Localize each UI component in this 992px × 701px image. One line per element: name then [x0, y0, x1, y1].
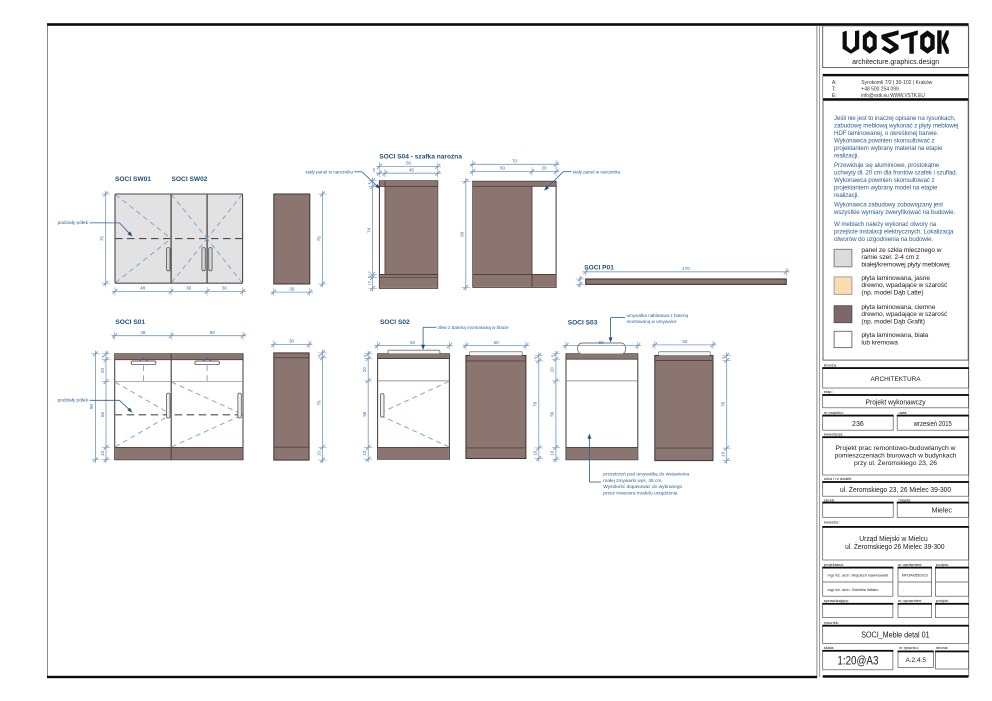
svg-text:2: 2	[367, 271, 371, 273]
svg-text:4: 4	[363, 355, 367, 357]
svg-text:E:: E:	[832, 93, 837, 99]
svg-text:4: 4	[317, 355, 321, 357]
svg-text:płyta laminowana, ciemne: płyta laminowana, ciemne	[861, 304, 935, 311]
svg-text:małej zmywarki wys. 45 cm.: małej zmywarki wys. 45 cm.	[603, 478, 662, 484]
svg-text:4: 4	[367, 183, 371, 185]
svg-text:SOCI S02: SOCI S02	[380, 319, 410, 326]
svg-text:10: 10	[550, 450, 555, 456]
svg-text:ramie szer. 2-4 cm z: ramie szer. 2-4 cm z	[861, 254, 919, 261]
svg-text:Urząd Miejski w Mielcu: Urząd Miejski w Mielcu	[859, 536, 927, 543]
svg-text:56: 56	[362, 411, 367, 417]
svg-text:60: 60	[210, 330, 216, 335]
svg-text:Projekt prac remontowo-budowla: Projekt prac remontowo-budowlanych w	[836, 445, 956, 452]
svg-text:4: 4	[101, 356, 105, 358]
svg-text:drewno, wpadające w szarość: drewno, wpadające w szarość	[861, 282, 948, 289]
svg-text:przestrzeń pod umywalką do wst: przestrzeń pod umywalką do wstawienia	[603, 472, 689, 478]
svg-text:30: 30	[289, 286, 295, 291]
svg-text:ul. Żeromskiego 26 Mielec 39-3: ul. Żeromskiego 26 Mielec 39-300	[845, 542, 944, 551]
svg-text:projektantem wybrany materiał: projektantem wybrany materiał na etapie	[834, 145, 943, 152]
svg-text:białej/kremowej płyty meblowej: białej/kremowej płyty meblowej	[861, 262, 950, 269]
svg-text:90: 90	[460, 231, 465, 237]
svg-text:76: 76	[721, 401, 726, 407]
svg-text:strona:: strona:	[936, 645, 948, 650]
svg-text:48: 48	[140, 330, 146, 335]
svg-text:30: 30	[186, 286, 192, 291]
svg-text:10: 10	[362, 450, 367, 456]
svg-text:20: 20	[541, 166, 547, 171]
svg-text:data:: data:	[899, 410, 908, 415]
svg-text:10: 10	[721, 451, 726, 457]
svg-text:W meblach należy wykonać otwor: W meblach należy wykonać otwory na	[834, 221, 937, 228]
svg-text:wszystkie wymiary zweryfikować: wszystkie wymiary zweryfikować na budowi…	[833, 209, 955, 216]
svg-text:SOCI S03: SOCI S03	[568, 319, 598, 326]
svg-text:nr uprawnień:: nr uprawnień:	[898, 562, 922, 567]
svg-text:(np. model Dąb Latte): (np. model Dąb Latte)	[861, 290, 923, 297]
svg-text:Syrokomli 7/2 | 30-102 | Krak: Syrokomli 7/2 | 30-102 | Kraków	[861, 80, 932, 86]
svg-text:stały panel w narożniku: stały panel w narożniku	[573, 169, 621, 174]
svg-text:Wysokość dopasować do wybraneg: Wysokość dopasować do wybranego	[603, 484, 682, 490]
svg-text:SOCI SW02: SOCI SW02	[172, 176, 208, 183]
svg-text:realizacji.: realizacji.	[834, 192, 859, 199]
svg-text:projektanci:: projektanci:	[824, 562, 844, 567]
svg-text:4: 4	[722, 357, 726, 359]
svg-text:4: 4	[551, 355, 555, 357]
svg-text:umywalka nablatowa z baterią: umywalka nablatowa z baterią	[627, 313, 689, 318]
svg-text:60: 60	[599, 340, 605, 345]
svg-text:56: 56	[550, 411, 555, 417]
svg-text:+48 500 254 099: +48 500 254 099	[861, 87, 899, 93]
svg-text:Wykonawca powinien skonsultowa: Wykonawca powinien skonsultować z	[834, 137, 934, 144]
svg-text:SOCI S04 - szafka narożna: SOCI S04 - szafka narożna	[379, 154, 462, 161]
svg-text:74: 74	[366, 227, 371, 233]
svg-text:ul. Żeromskiego 23, 26 Mielec: ul. Żeromskiego 23, 26 Mielec 39-300	[840, 485, 951, 494]
svg-text:montowaną w umywalce: montowaną w umywalce	[627, 319, 677, 324]
svg-text:lub kremowa: lub kremowa	[861, 340, 898, 347]
svg-text:branża:: branża:	[824, 363, 837, 368]
svg-text:architecture.graphics.design: architecture.graphics.design	[852, 59, 939, 66]
svg-text:1:20@A3: 1:20@A3	[837, 656, 878, 668]
svg-text:nr rysunku:: nr rysunku:	[899, 645, 919, 650]
svg-text:nr projektu:: nr projektu:	[824, 410, 844, 415]
svg-text:45: 45	[409, 167, 415, 172]
svg-text:30: 30	[222, 286, 228, 291]
svg-text:75: 75	[100, 236, 105, 242]
svg-text:T:: T:	[832, 87, 836, 93]
svg-text:10: 10	[100, 451, 105, 457]
svg-text:(np. model Dąb Grafit): (np. model Dąb Grafit)	[861, 319, 924, 326]
svg-text:10: 10	[316, 451, 321, 457]
svg-text:realizacji.: realizacji.	[834, 152, 859, 159]
svg-text:50: 50	[682, 339, 688, 344]
svg-text:10: 10	[533, 450, 538, 456]
svg-text:20: 20	[550, 367, 555, 373]
svg-text:mgr inż. arch. Gabriela Waśko: mgr inż. arch. Gabriela Waśko	[828, 588, 879, 592]
svg-text:60: 60	[410, 340, 416, 345]
svg-text:SOCI_Meble detal 01: SOCI_Meble detal 01	[861, 631, 930, 640]
svg-text:70: 70	[512, 159, 518, 164]
svg-text:236: 236	[852, 421, 864, 428]
svg-text:mgr inż. arch. Wojciech Gawino: mgr inż. arch. Wojciech Gawinowski	[828, 573, 889, 577]
svg-text:SOCI S01: SOCI S01	[115, 319, 145, 326]
svg-text:przejście instalacji elektrycz: przejście instalacji elektrycznych. Loka…	[834, 229, 954, 236]
svg-text:SOCI P01: SOCI P01	[584, 265, 614, 272]
svg-text:Przewiduje się aluminiowe, pro: Przewiduje się aluminiowe, prostokątne	[834, 162, 940, 169]
svg-text:otworów do uzgodnienia na budo: otworów do uzgodnienia na budowie.	[834, 236, 933, 243]
svg-text:zabudowę meblową wykonać z pły: zabudowę meblową wykonać z płyty meblowe…	[834, 122, 958, 129]
svg-text:przy ul. Żeromskiego 23, 26: przy ul. Żeromskiego 23, 26	[854, 458, 937, 467]
svg-text:rysunek:: rysunek:	[824, 620, 839, 625]
svg-text:20: 20	[362, 367, 367, 373]
svg-text:170: 170	[682, 266, 690, 271]
svg-text:A:: A:	[832, 80, 837, 86]
svg-text:50: 50	[494, 340, 500, 345]
svg-text:zlew z baterią montowaną w bla: zlew z baterią montowaną w blacie	[438, 325, 509, 330]
svg-text:Jeśli nie jest to inaczej opis: Jeśli nie jest to inaczej opisane na rys…	[834, 115, 956, 122]
svg-text:5: 5	[373, 167, 376, 172]
svg-text:drewno, wpadające w szarość: drewno, wpadające w szarość	[861, 311, 948, 318]
svg-text:90: 90	[89, 404, 94, 410]
svg-text:76: 76	[316, 236, 321, 242]
svg-text:Mielec: Mielec	[932, 507, 953, 514]
svg-text:projektantem wybrany model na: projektantem wybrany model na etapie	[834, 184, 938, 191]
svg-text:stały panel w narożniku: stały panel w narożniku	[305, 169, 353, 174]
svg-text:podpis:: podpis:	[936, 562, 949, 567]
svg-text:ulica / nr działki:: ulica / nr działki:	[824, 476, 852, 481]
svg-text:nr uprawnień:: nr uprawnień:	[898, 598, 922, 603]
svg-text:podziały półek: podziały półek	[58, 220, 89, 226]
svg-text:skala:: skala:	[824, 645, 834, 650]
svg-text:podziały półek: podziały półek	[58, 398, 89, 404]
svg-text:info@vstk.eu WWW.VSTK.EU: info@vstk.eu WWW.VSTK.EU	[861, 93, 925, 99]
svg-text:pomieszczeniach biurowach w bu: pomieszczeniach biurowach w budynkach	[835, 453, 957, 460]
svg-text:8: 8	[367, 276, 371, 278]
svg-text:48: 48	[140, 286, 146, 291]
svg-text:Wykonawca powinien skonsultowa: Wykonawca powinien skonsultować z	[834, 177, 934, 184]
svg-text:Wykonawca zabudowy zobowiązany: Wykonawca zabudowy zobowiązany jest	[834, 201, 943, 208]
svg-text:sprawdzający:: sprawdzający:	[824, 598, 849, 603]
svg-text:przez inwesora modelu urządzen: przez inwesora modelu urządzenia	[603, 490, 677, 496]
svg-text:30: 30	[289, 339, 295, 344]
svg-text:SOCI SW01: SOCI SW01	[115, 176, 151, 183]
svg-text:50: 50	[500, 166, 506, 171]
svg-text:76: 76	[316, 400, 321, 406]
svg-text:4: 4	[534, 357, 538, 359]
svg-text:20: 20	[100, 368, 105, 374]
svg-text:ARCHITEKTURA: ARCHITEKTURA	[871, 376, 921, 383]
svg-text:inwestycja:: inwestycja:	[824, 432, 844, 437]
svg-text:inwestor:: inwestor:	[824, 519, 840, 524]
svg-text:10: 10	[367, 281, 371, 285]
svg-text:Projekt wykonawczy: Projekt wykonawczy	[866, 399, 926, 406]
svg-text:wrzesień 2015: wrzesień 2015	[913, 421, 952, 428]
svg-text:56: 56	[100, 412, 105, 418]
svg-text:50: 50	[406, 161, 412, 166]
svg-text:A.2.4.5: A.2.4.5	[905, 657, 926, 664]
svg-text:76: 76	[533, 401, 538, 407]
svg-text:uchwyty dł. 20 cm dla frontów: uchwyty dł. 20 cm dla frontów szafek i s…	[834, 169, 957, 176]
svg-text:etap:: etap:	[824, 389, 833, 394]
svg-text:MPOIA/055/2010: MPOIA/055/2010	[902, 573, 928, 577]
svg-text:podpis:: podpis:	[936, 598, 949, 603]
svg-text:płyta laminowana, jasne: płyta laminowana, jasne	[861, 275, 930, 282]
svg-text:płyta laminowana, biała: płyta laminowana, biała	[861, 332, 928, 339]
svg-text:HDF laminowanej, o określonej: HDF laminowanej, o określonej barwie.	[834, 130, 939, 137]
svg-text:panel ze szkła mlecznego w: panel ze szkła mlecznego w	[861, 247, 941, 254]
